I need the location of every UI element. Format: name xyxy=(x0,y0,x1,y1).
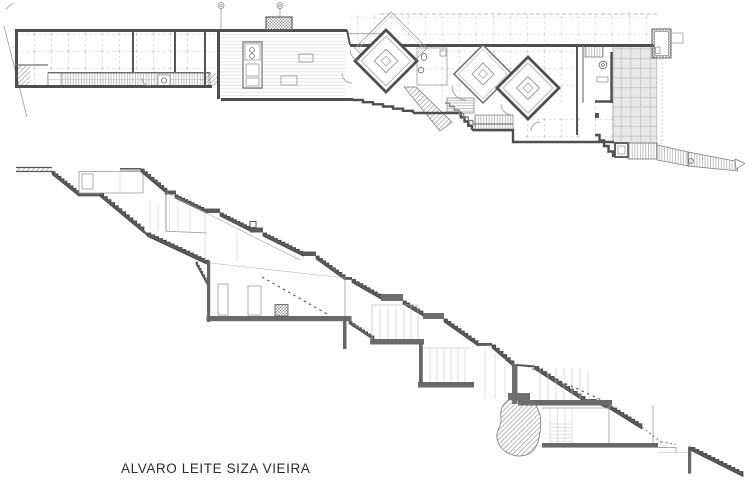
door xyxy=(218,284,228,315)
stove-block xyxy=(275,305,288,317)
door xyxy=(248,286,261,315)
wood-deck-floor xyxy=(220,34,345,98)
gray-roof-terrace xyxy=(613,46,662,143)
street-ground xyxy=(16,168,52,172)
section-mid-rooms xyxy=(343,305,505,399)
roof-cascade xyxy=(165,191,642,430)
architectural-drawing-sheet: ALVARO LEITE SIZA VIEIRA xyxy=(0,0,745,485)
drawing-svg xyxy=(0,0,745,485)
section-drawing xyxy=(16,168,743,477)
section-room-main xyxy=(207,261,352,322)
rock-hatch xyxy=(497,400,541,456)
architect-title: ALVARO LEITE SIZA VIEIRA xyxy=(121,461,310,476)
section-stair-bands xyxy=(52,172,209,287)
plan-exterior-stairs xyxy=(628,143,745,171)
street-entry-box xyxy=(652,29,683,58)
chimney-stub xyxy=(250,222,256,228)
floor-plan-drawing xyxy=(4,3,745,172)
chimney xyxy=(218,3,292,32)
section-lower-rooms xyxy=(497,366,743,477)
